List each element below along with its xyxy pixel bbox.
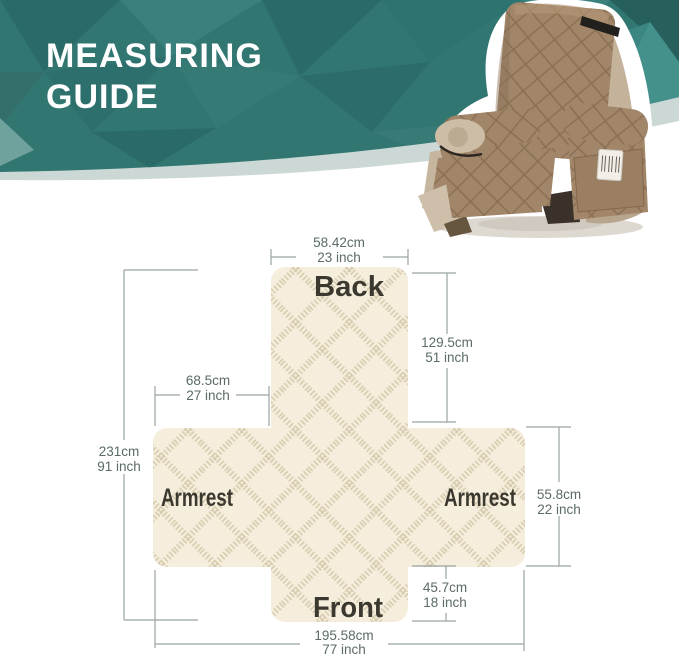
front-height-inch: 18 inch (423, 595, 467, 610)
armrest-width-cm: 68.5cm (186, 373, 230, 388)
label-back: Back (314, 271, 385, 303)
total-width-inch: 77 inch (322, 642, 366, 655)
back-width-inch: 23 inch (317, 250, 361, 265)
measuring-guide-infographic: MEASURING GUIDE (0, 0, 679, 655)
cover-shape (153, 267, 525, 622)
label-front: Front (313, 592, 383, 624)
measurement-back-width: 58.42cm 23 inch (271, 235, 408, 265)
total-length-inch: 91 inch (97, 459, 141, 474)
measurement-armrest-height: 55.8cm 22 inch (526, 427, 581, 566)
measurement-back-height: 129.5cm 51 inch (412, 273, 473, 422)
label-armrest-left: Armrest (161, 484, 234, 512)
armrest-height-inch: 22 inch (537, 502, 581, 517)
total-length-cm: 231cm (99, 444, 140, 459)
label-armrest-right: Armrest (444, 484, 517, 512)
armrest-height-cm: 55.8cm (537, 487, 581, 502)
measurement-front-height: 45.7cm 18 inch (412, 566, 467, 621)
armrest-width-inch: 27 inch (186, 388, 230, 403)
total-width-cm: 195.58cm (314, 628, 373, 643)
back-height-cm: 129.5cm (421, 335, 473, 350)
measurement-armrest-width: 68.5cm 27 inch (155, 373, 269, 426)
back-height-inch: 51 inch (425, 350, 469, 365)
cover-layout-diagram: Back Front Armrest Armrest 58.42cm 23 in… (0, 0, 679, 655)
back-width-cm: 58.42cm (313, 235, 365, 250)
front-height-cm: 45.7cm (423, 580, 467, 595)
